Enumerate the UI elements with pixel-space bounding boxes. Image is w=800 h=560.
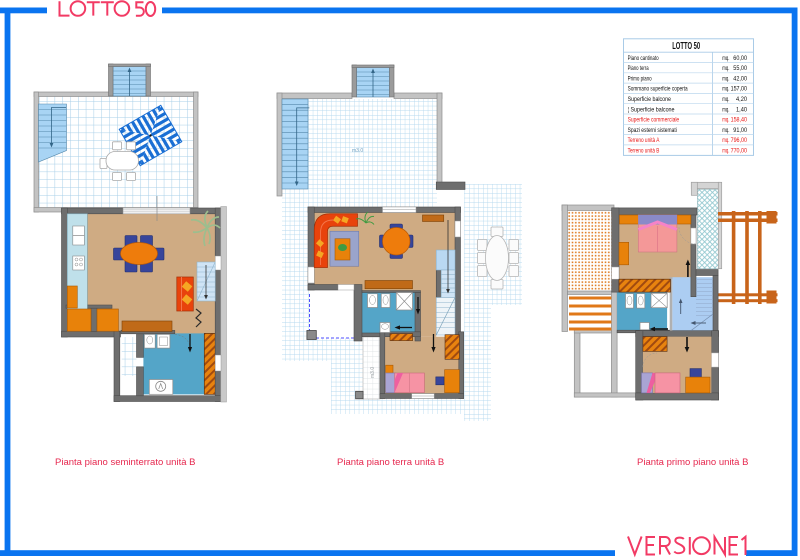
svg-text:mq.: mq. — [722, 127, 729, 134]
svg-text:Piano cantinato: Piano cantinato — [628, 55, 659, 62]
svg-text:LOTTO 50: LOTTO 50 — [672, 41, 700, 52]
svg-text:¦ Superficie balcone: ¦ Superficie balcone — [628, 106, 675, 113]
svg-text:mq.: mq. — [722, 148, 729, 155]
svg-text:Terreno unità B: Terreno unità B — [628, 148, 660, 155]
svg-text:mq.: mq. — [722, 137, 729, 144]
svg-text:mq.: mq. — [722, 106, 729, 113]
svg-text:mq.: mq. — [722, 86, 729, 93]
svg-text:mq.: mq. — [722, 75, 729, 82]
svg-text:mq.: mq. — [722, 65, 729, 72]
svg-text:mq.: mq. — [722, 55, 729, 62]
svg-text:Pianta piano seminterrato unit: Pianta piano seminterrato unità B — [55, 457, 195, 468]
svg-text:Pianta primo piano unità B: Pianta primo piano unità B — [637, 457, 748, 468]
svg-text:4,20: 4,20 — [736, 96, 748, 103]
svg-text:Piano terra: Piano terra — [628, 65, 649, 72]
svg-text:55,00: 55,00 — [733, 65, 747, 72]
svg-text:Superficie balcone: Superficie balcone — [628, 96, 672, 103]
svg-text:mq.: mq. — [722, 96, 729, 103]
svg-text:157,00: 157,00 — [731, 86, 748, 93]
svg-text:158,40: 158,40 — [731, 117, 748, 124]
svg-text:796,00: 796,00 — [731, 137, 748, 144]
svg-text:Primo piano: Primo piano — [628, 75, 652, 82]
svg-text:60,00: 60,00 — [733, 55, 747, 62]
svg-text:770,00: 770,00 — [731, 148, 748, 155]
svg-text:1,40: 1,40 — [736, 106, 748, 113]
svg-text:mq.: mq. — [722, 117, 729, 124]
svg-text:Spazi esterni sistemati: Spazi esterni sistemati — [628, 127, 677, 134]
svg-text:Sommano superficie coperta: Sommano superficie coperta — [628, 86, 688, 93]
svg-text:Pianta piano terra unità B: Pianta piano terra unità B — [337, 457, 444, 468]
svg-text:Superficie commerciale: Superficie commerciale — [628, 117, 680, 124]
svg-text:42,00: 42,00 — [733, 75, 747, 82]
svg-text:Terreno unità A: Terreno unità A — [628, 137, 660, 144]
svg-text:m3.0: m3.0 — [352, 148, 363, 154]
svg-text:m3.0: m3.0 — [370, 367, 376, 378]
svg-text:91,00: 91,00 — [733, 127, 747, 134]
